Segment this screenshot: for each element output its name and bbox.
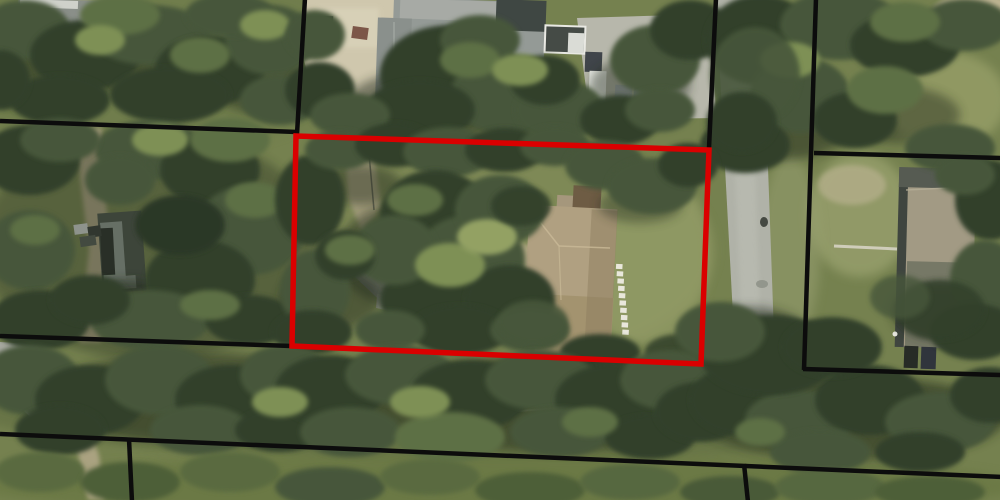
aerial-imagery[interactable] bbox=[0, 0, 1000, 500]
tree-canopy-layer-item bbox=[735, 418, 785, 446]
tree-canopy-layer-item bbox=[492, 54, 548, 86]
tree-canopy-layer-item bbox=[580, 464, 680, 500]
vehicles-layer-item bbox=[756, 280, 768, 288]
parked-car bbox=[921, 347, 937, 370]
roof-vent bbox=[621, 315, 628, 320]
roof-vent bbox=[621, 322, 628, 327]
parked-car bbox=[904, 346, 919, 368]
tree-canopy-layer-item bbox=[380, 459, 480, 495]
tree-canopy-layer-item bbox=[675, 302, 765, 362]
roof-vent bbox=[617, 278, 624, 283]
picnic-table bbox=[351, 26, 369, 40]
tree-canopy-layer-item bbox=[870, 2, 940, 42]
tree-canopy-layer-item bbox=[15, 405, 105, 455]
aerial-map-viewport[interactable] bbox=[0, 0, 1000, 500]
tree-canopy-layer-item bbox=[190, 118, 270, 162]
tree-canopy-layer-item bbox=[325, 235, 375, 265]
tree-canopy-layer-item bbox=[50, 275, 130, 325]
roof-vent bbox=[619, 293, 626, 298]
white-car bbox=[568, 33, 585, 54]
tree-canopy-layer-item bbox=[180, 290, 240, 320]
tree-canopy-layer-item bbox=[355, 310, 425, 350]
tree-canopy-layer-item bbox=[498, 300, 568, 344]
tree-canopy-layer-item bbox=[240, 10, 290, 40]
tree-canopy-layer-item bbox=[75, 25, 125, 55]
roof-vent bbox=[622, 330, 629, 335]
vehicles-layer-item bbox=[893, 332, 898, 337]
tree-canopy-layer-item bbox=[387, 184, 443, 216]
tree-canopy-layer-item bbox=[110, 67, 230, 123]
tree-canopy-layer-item bbox=[457, 219, 517, 255]
tree-canopy-layer-item bbox=[10, 215, 60, 245]
vehicles-layer-item bbox=[760, 217, 768, 227]
tree-canopy-layer-item bbox=[707, 92, 777, 152]
tree-canopy-layer-item bbox=[935, 155, 995, 195]
tree-canopy-layer-item bbox=[285, 10, 345, 60]
parcel-boundary-line bbox=[129, 439, 132, 500]
roof-vent bbox=[619, 300, 626, 305]
tree-canopy-layer-item bbox=[252, 387, 308, 417]
roof-vent bbox=[617, 271, 624, 276]
tree-canopy-layer-item bbox=[870, 275, 930, 319]
tree-canopy-layer-item bbox=[170, 37, 230, 73]
ground-layer-item bbox=[818, 165, 886, 205]
tree-canopy-layer-item bbox=[440, 42, 500, 78]
tree-canopy-layer-item bbox=[625, 88, 695, 132]
tree-canopy-layer-item bbox=[180, 452, 280, 492]
tree-canopy-layer-item bbox=[491, 186, 551, 226]
tree-canopy-layer-item bbox=[85, 155, 155, 205]
roof-vent bbox=[616, 264, 623, 269]
tree-canopy-layer-item bbox=[562, 407, 618, 437]
tree-canopy-layer-item bbox=[847, 66, 923, 114]
roof-vent bbox=[618, 286, 625, 291]
tree-canopy-layer-item bbox=[875, 432, 965, 472]
roof-vent bbox=[620, 308, 627, 313]
tree-canopy-layer-item bbox=[390, 386, 450, 418]
tree-canopy-layer-item bbox=[135, 195, 225, 255]
